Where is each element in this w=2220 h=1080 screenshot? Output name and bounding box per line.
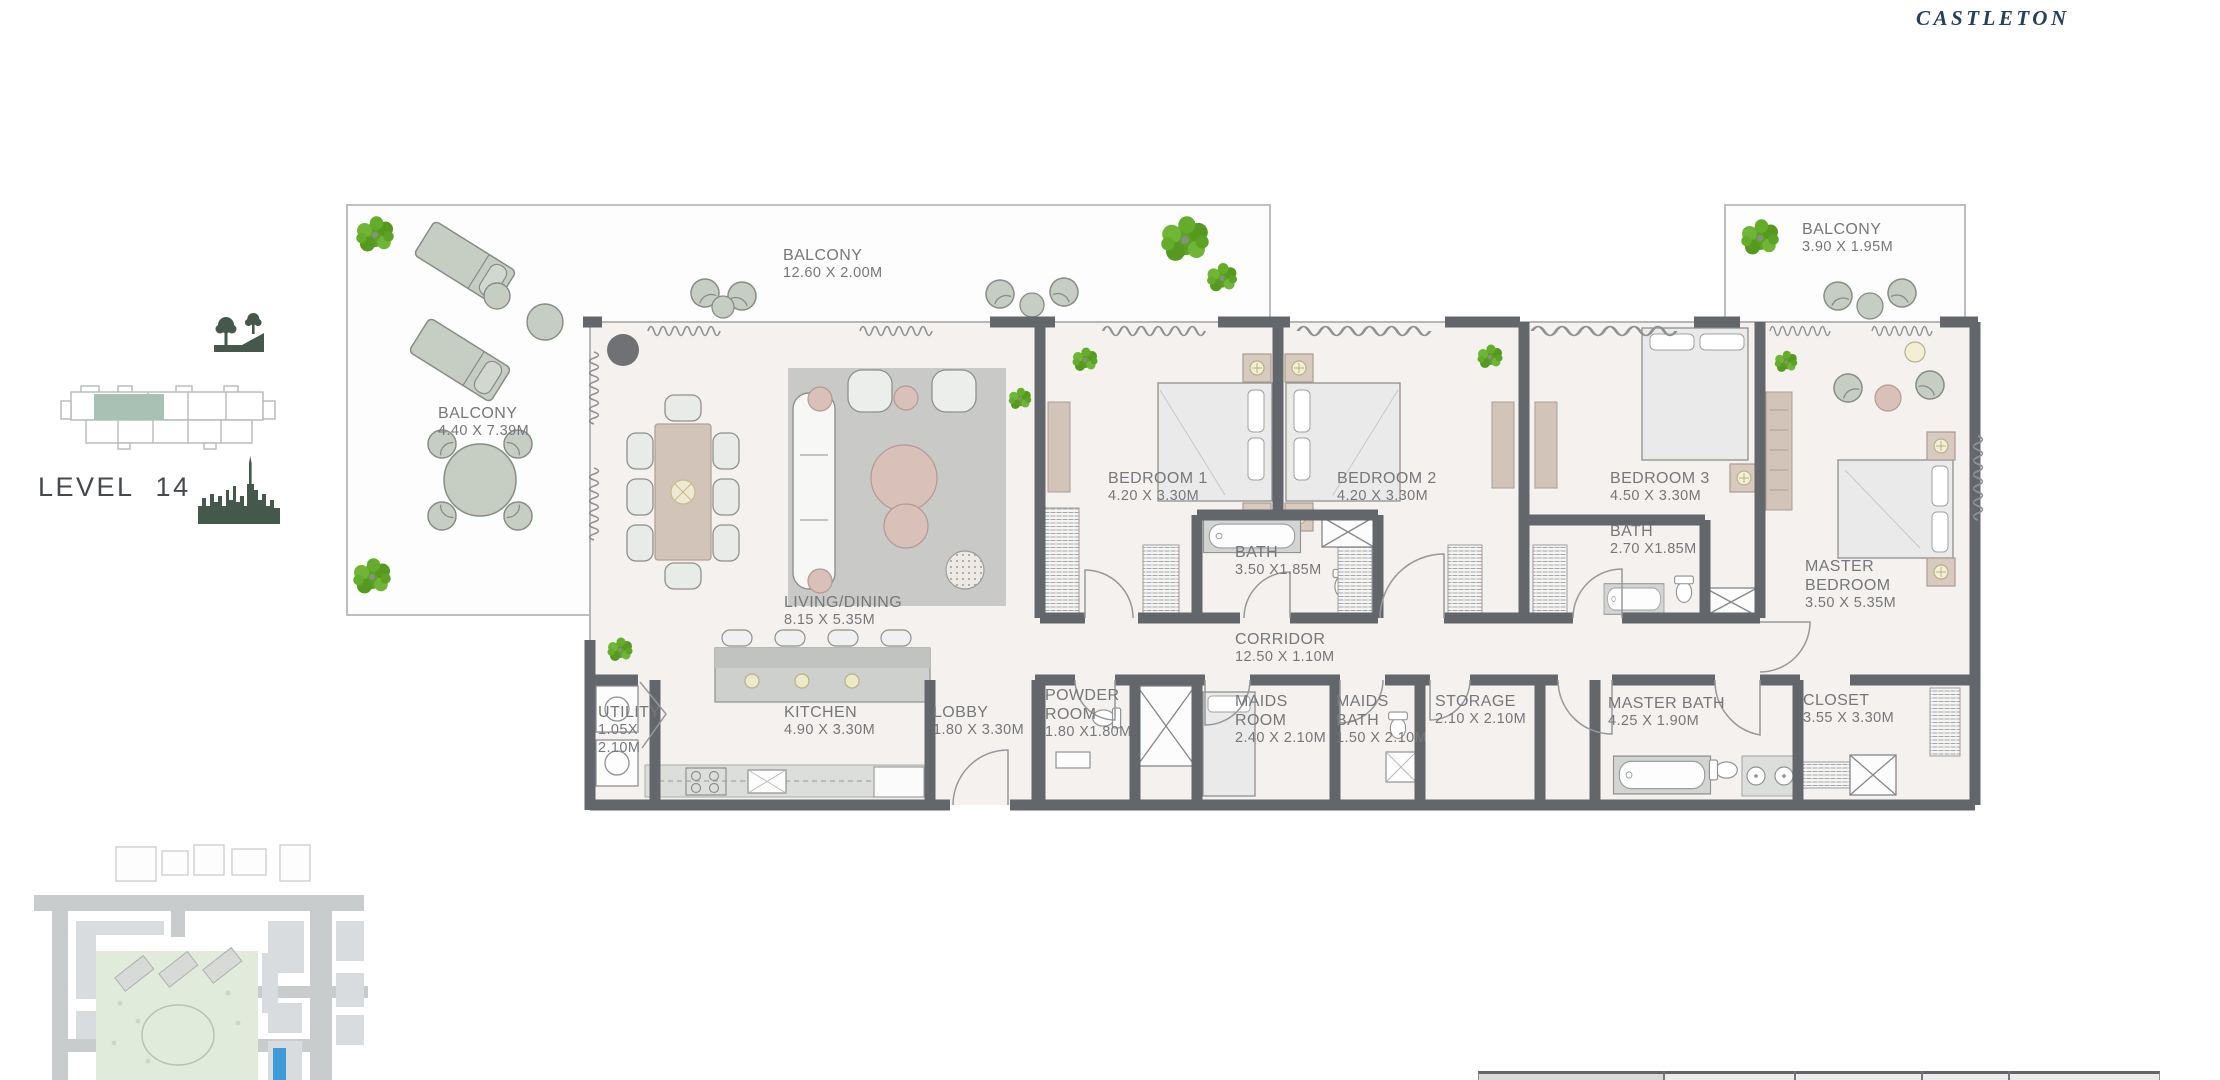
room-label-maids-bath: MAIDS BATH 1.50 X 2.10M xyxy=(1336,692,1406,748)
room-label-utility: UTILITY 1.05X 2.10M xyxy=(598,703,662,757)
floor-plan-page: CASTLETON LEVEL 14 xyxy=(0,0,2220,1080)
room-label-bedroom1: BEDROOM 1 4.20 X 3.30M xyxy=(1108,469,1208,506)
table-fragment xyxy=(1478,1071,2160,1080)
room-label-balcony-right: BALCONY 3.90 X 1.95M xyxy=(1802,220,1893,257)
room-label-bedroom2: BEDROOM 2 4.20 X 3.30M xyxy=(1337,469,1437,506)
wardrobe xyxy=(1535,402,1557,488)
room-label-living-dining: LIVING/DINING 8.15 X 5.35M xyxy=(784,593,902,630)
room-label-lobby: LOBBY 1.80 X 3.30M xyxy=(933,703,1024,740)
room-label-powder-room: POWDER ROOM 1.80 X1.80M xyxy=(1045,686,1133,742)
pouf xyxy=(946,551,984,589)
wardrobe xyxy=(1048,402,1070,492)
room-label-master-bedroom: MASTER BEDROOM 3.50 X 5.35M xyxy=(1805,557,1925,613)
room-label-maids-room: MAIDS ROOM 2.40 X 2.10M xyxy=(1235,692,1305,748)
sofa xyxy=(793,393,835,589)
room-label-corridor: CORRIDOR 12.50 X 1.10M xyxy=(1235,630,1335,667)
floor-lamp xyxy=(1905,342,1925,362)
room-label-kitchen: KITCHEN 4.90 X 3.30M xyxy=(784,703,875,740)
room-label-bath2: BATH 2.70 X1.85M xyxy=(1610,522,1697,559)
floor-plan-drawing xyxy=(0,0,2220,1080)
room-label-bath1: BATH 3.50 X1.85M xyxy=(1235,543,1322,580)
wardrobe xyxy=(1492,402,1514,488)
appliance xyxy=(874,767,924,797)
room-label-balcony-left: BALCONY 4.40 X 7.39M xyxy=(438,404,529,441)
round-table xyxy=(444,444,516,516)
room-label-storage: STORAGE 2.10 X 2.10M xyxy=(1435,692,1526,729)
room-label-closet: CLOSET 3.55 X 3.30M xyxy=(1803,691,1894,728)
room-label-bedroom3: BEDROOM 3 4.50 X 3.30M xyxy=(1610,469,1710,506)
armchair xyxy=(932,370,976,412)
room-label-balcony-top: BALCONY 12.60 X 2.00M xyxy=(783,246,883,283)
armchair xyxy=(848,370,892,412)
column xyxy=(607,334,639,366)
room-label-master-bath: MASTER BATH 4.25 X 1.90M xyxy=(1608,694,1725,731)
